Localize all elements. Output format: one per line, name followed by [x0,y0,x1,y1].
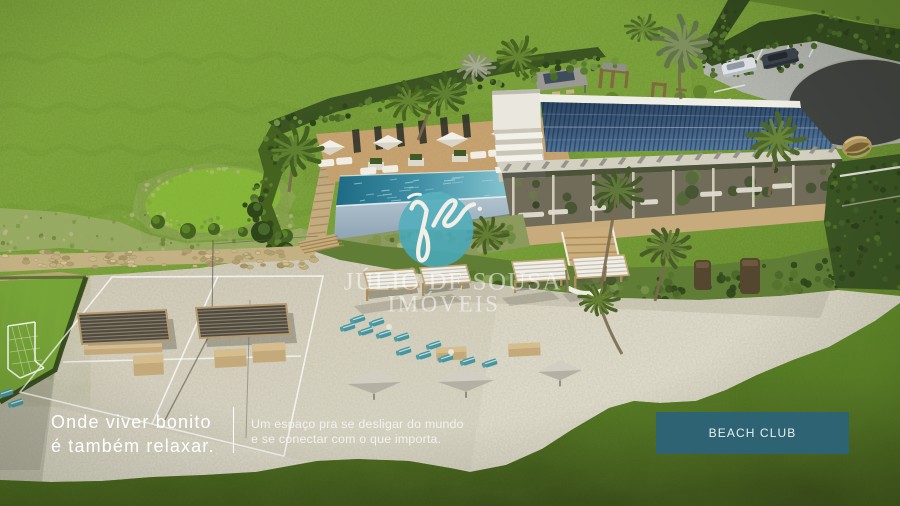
svg-text:IMÓVEIS: IMÓVEIS [388,291,501,317]
